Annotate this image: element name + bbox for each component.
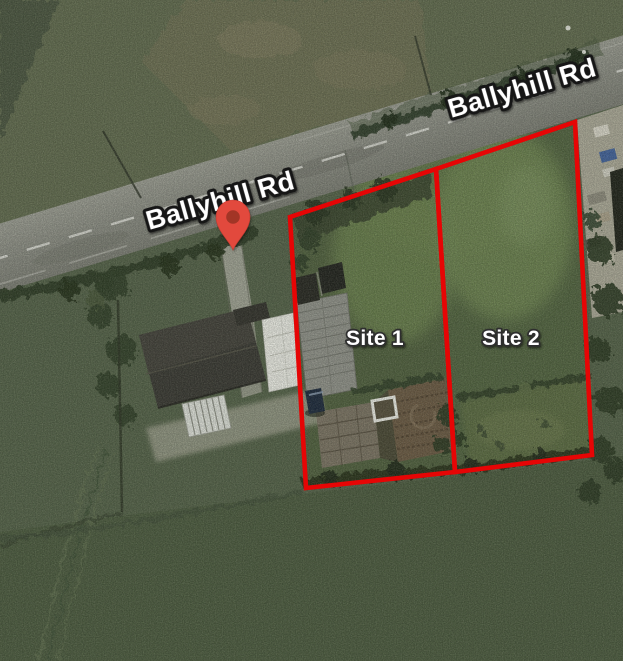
site-2-label: Site 2 <box>482 327 540 350</box>
map-screenshot: Site 1 Site 2 Ballyhill Rd Ballyhill Rd <box>0 0 623 661</box>
satellite-map[interactable]: Site 1 Site 2 Ballyhill Rd Ballyhill Rd <box>0 0 623 661</box>
site-1-label: Site 1 <box>346 327 404 350</box>
